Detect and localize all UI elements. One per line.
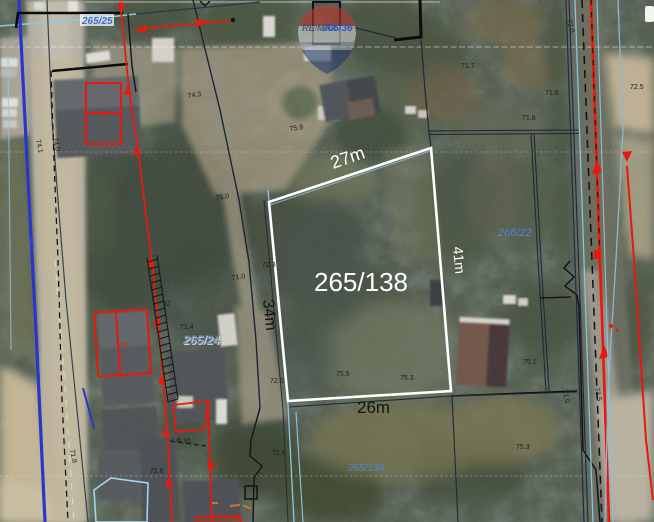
svg-text:265/138: 265/138 <box>314 267 408 297</box>
svg-text:34m: 34m <box>259 299 279 332</box>
svg-text:71.4: 71.4 <box>180 324 194 331</box>
svg-text:71.8: 71.8 <box>522 115 536 122</box>
svg-text:72.3: 72.3 <box>262 262 276 269</box>
svg-text:75.5: 75.5 <box>336 371 350 378</box>
svg-text:265/36: 265/36 <box>321 23 353 34</box>
svg-text:72.8: 72.8 <box>150 468 164 475</box>
svg-text:41m: 41m <box>450 246 468 275</box>
svg-text:52: 52 <box>163 301 171 308</box>
svg-text:11: 11 <box>100 111 107 118</box>
svg-text:75.3: 75.3 <box>400 375 414 382</box>
svg-text:72.0: 72.0 <box>270 378 284 385</box>
svg-text:265/25: 265/25 <box>81 16 113 27</box>
svg-text:265/139: 265/139 <box>347 463 385 474</box>
svg-text:75.1: 75.1 <box>523 359 537 366</box>
svg-text:71.7: 71.7 <box>461 63 475 70</box>
svg-text:72.6: 72.6 <box>272 450 286 457</box>
svg-text:16: 16 <box>120 342 128 349</box>
svg-text:71.8: 71.8 <box>545 90 559 97</box>
svg-text:266/22: 266/22 <box>497 227 532 239</box>
svg-text:26m: 26m <box>357 398 390 417</box>
svg-text:75.3: 75.3 <box>516 444 530 451</box>
svg-text:265/24: 265/24 <box>182 333 220 347</box>
svg-text:72.5: 72.5 <box>630 84 644 91</box>
svg-text:I Φ VI.: I Φ VI. <box>172 438 192 445</box>
